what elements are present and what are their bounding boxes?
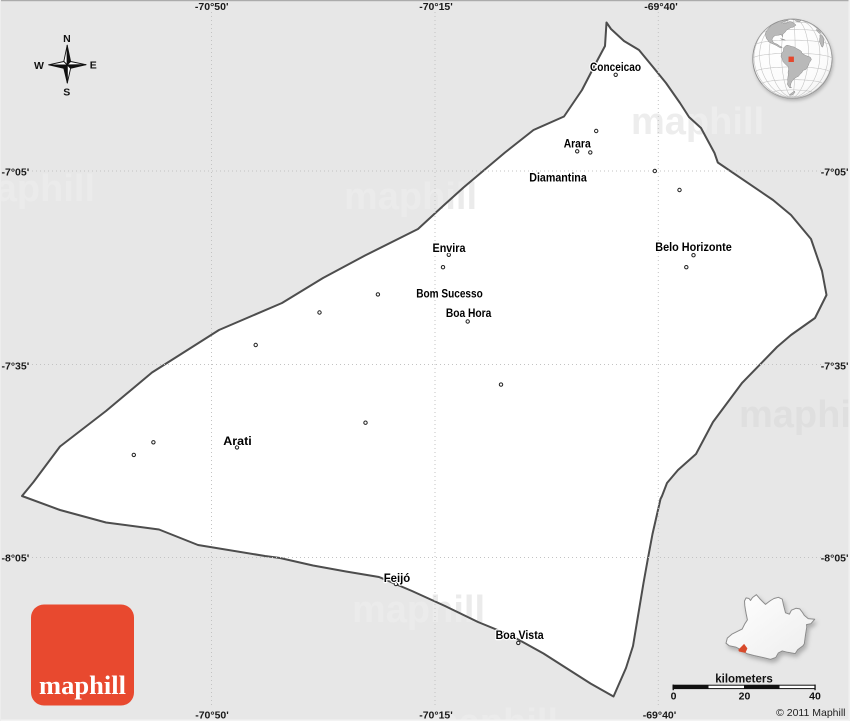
- svg-text:maphill: maphill: [739, 394, 850, 436]
- svg-text:Arara: Arara: [564, 137, 591, 151]
- svg-text:-8°05': -8°05': [2, 553, 30, 565]
- svg-text:-69°40': -69°40': [643, 710, 677, 721]
- svg-text:-7°35': -7°35': [2, 361, 30, 373]
- svg-text:S: S: [63, 87, 70, 99]
- svg-text:Diamantina: Diamantina: [529, 171, 587, 185]
- svg-text:-70°15': -70°15': [419, 1, 453, 13]
- svg-text:-70°15': -70°15': [419, 710, 453, 721]
- svg-text:-7°05': -7°05': [821, 167, 849, 179]
- svg-text:20: 20: [739, 691, 751, 703]
- svg-text:-69°40': -69°40': [644, 1, 678, 13]
- svg-text:E: E: [90, 59, 97, 71]
- svg-text:maphill: maphill: [352, 589, 485, 631]
- svg-text:40: 40: [809, 691, 821, 703]
- svg-text:Feijó: Feijó: [384, 571, 411, 585]
- svg-text:Belo Horizonte: Belo Horizonte: [655, 240, 732, 254]
- svg-text:-8°05': -8°05': [821, 553, 849, 565]
- svg-text:-70°50': -70°50': [195, 710, 229, 721]
- svg-text:kilometers: kilometers: [715, 674, 773, 686]
- svg-text:maphill: maphill: [39, 670, 126, 700]
- svg-text:Arati: Arati: [223, 434, 252, 448]
- svg-text:N: N: [63, 33, 71, 45]
- svg-text:Conceicao: Conceicao: [590, 60, 641, 74]
- svg-text:maphill: maphill: [631, 101, 764, 143]
- svg-text:Boa Vista: Boa Vista: [496, 628, 544, 642]
- svg-text:Envira: Envira: [433, 241, 466, 255]
- svg-text:W: W: [34, 60, 44, 72]
- svg-text:maphill: maphill: [344, 176, 477, 218]
- svg-text:© 2011 Maphill: © 2011 Maphill: [776, 707, 845, 719]
- svg-text:-70°50': -70°50': [195, 1, 229, 13]
- svg-text:-7°05': -7°05': [2, 167, 30, 179]
- svg-text:Boa Hora: Boa Hora: [446, 306, 492, 320]
- svg-text:Bom Sucesso: Bom Sucesso: [416, 287, 483, 301]
- svg-text:-7°35': -7°35': [821, 361, 849, 373]
- svg-text:0: 0: [671, 691, 677, 703]
